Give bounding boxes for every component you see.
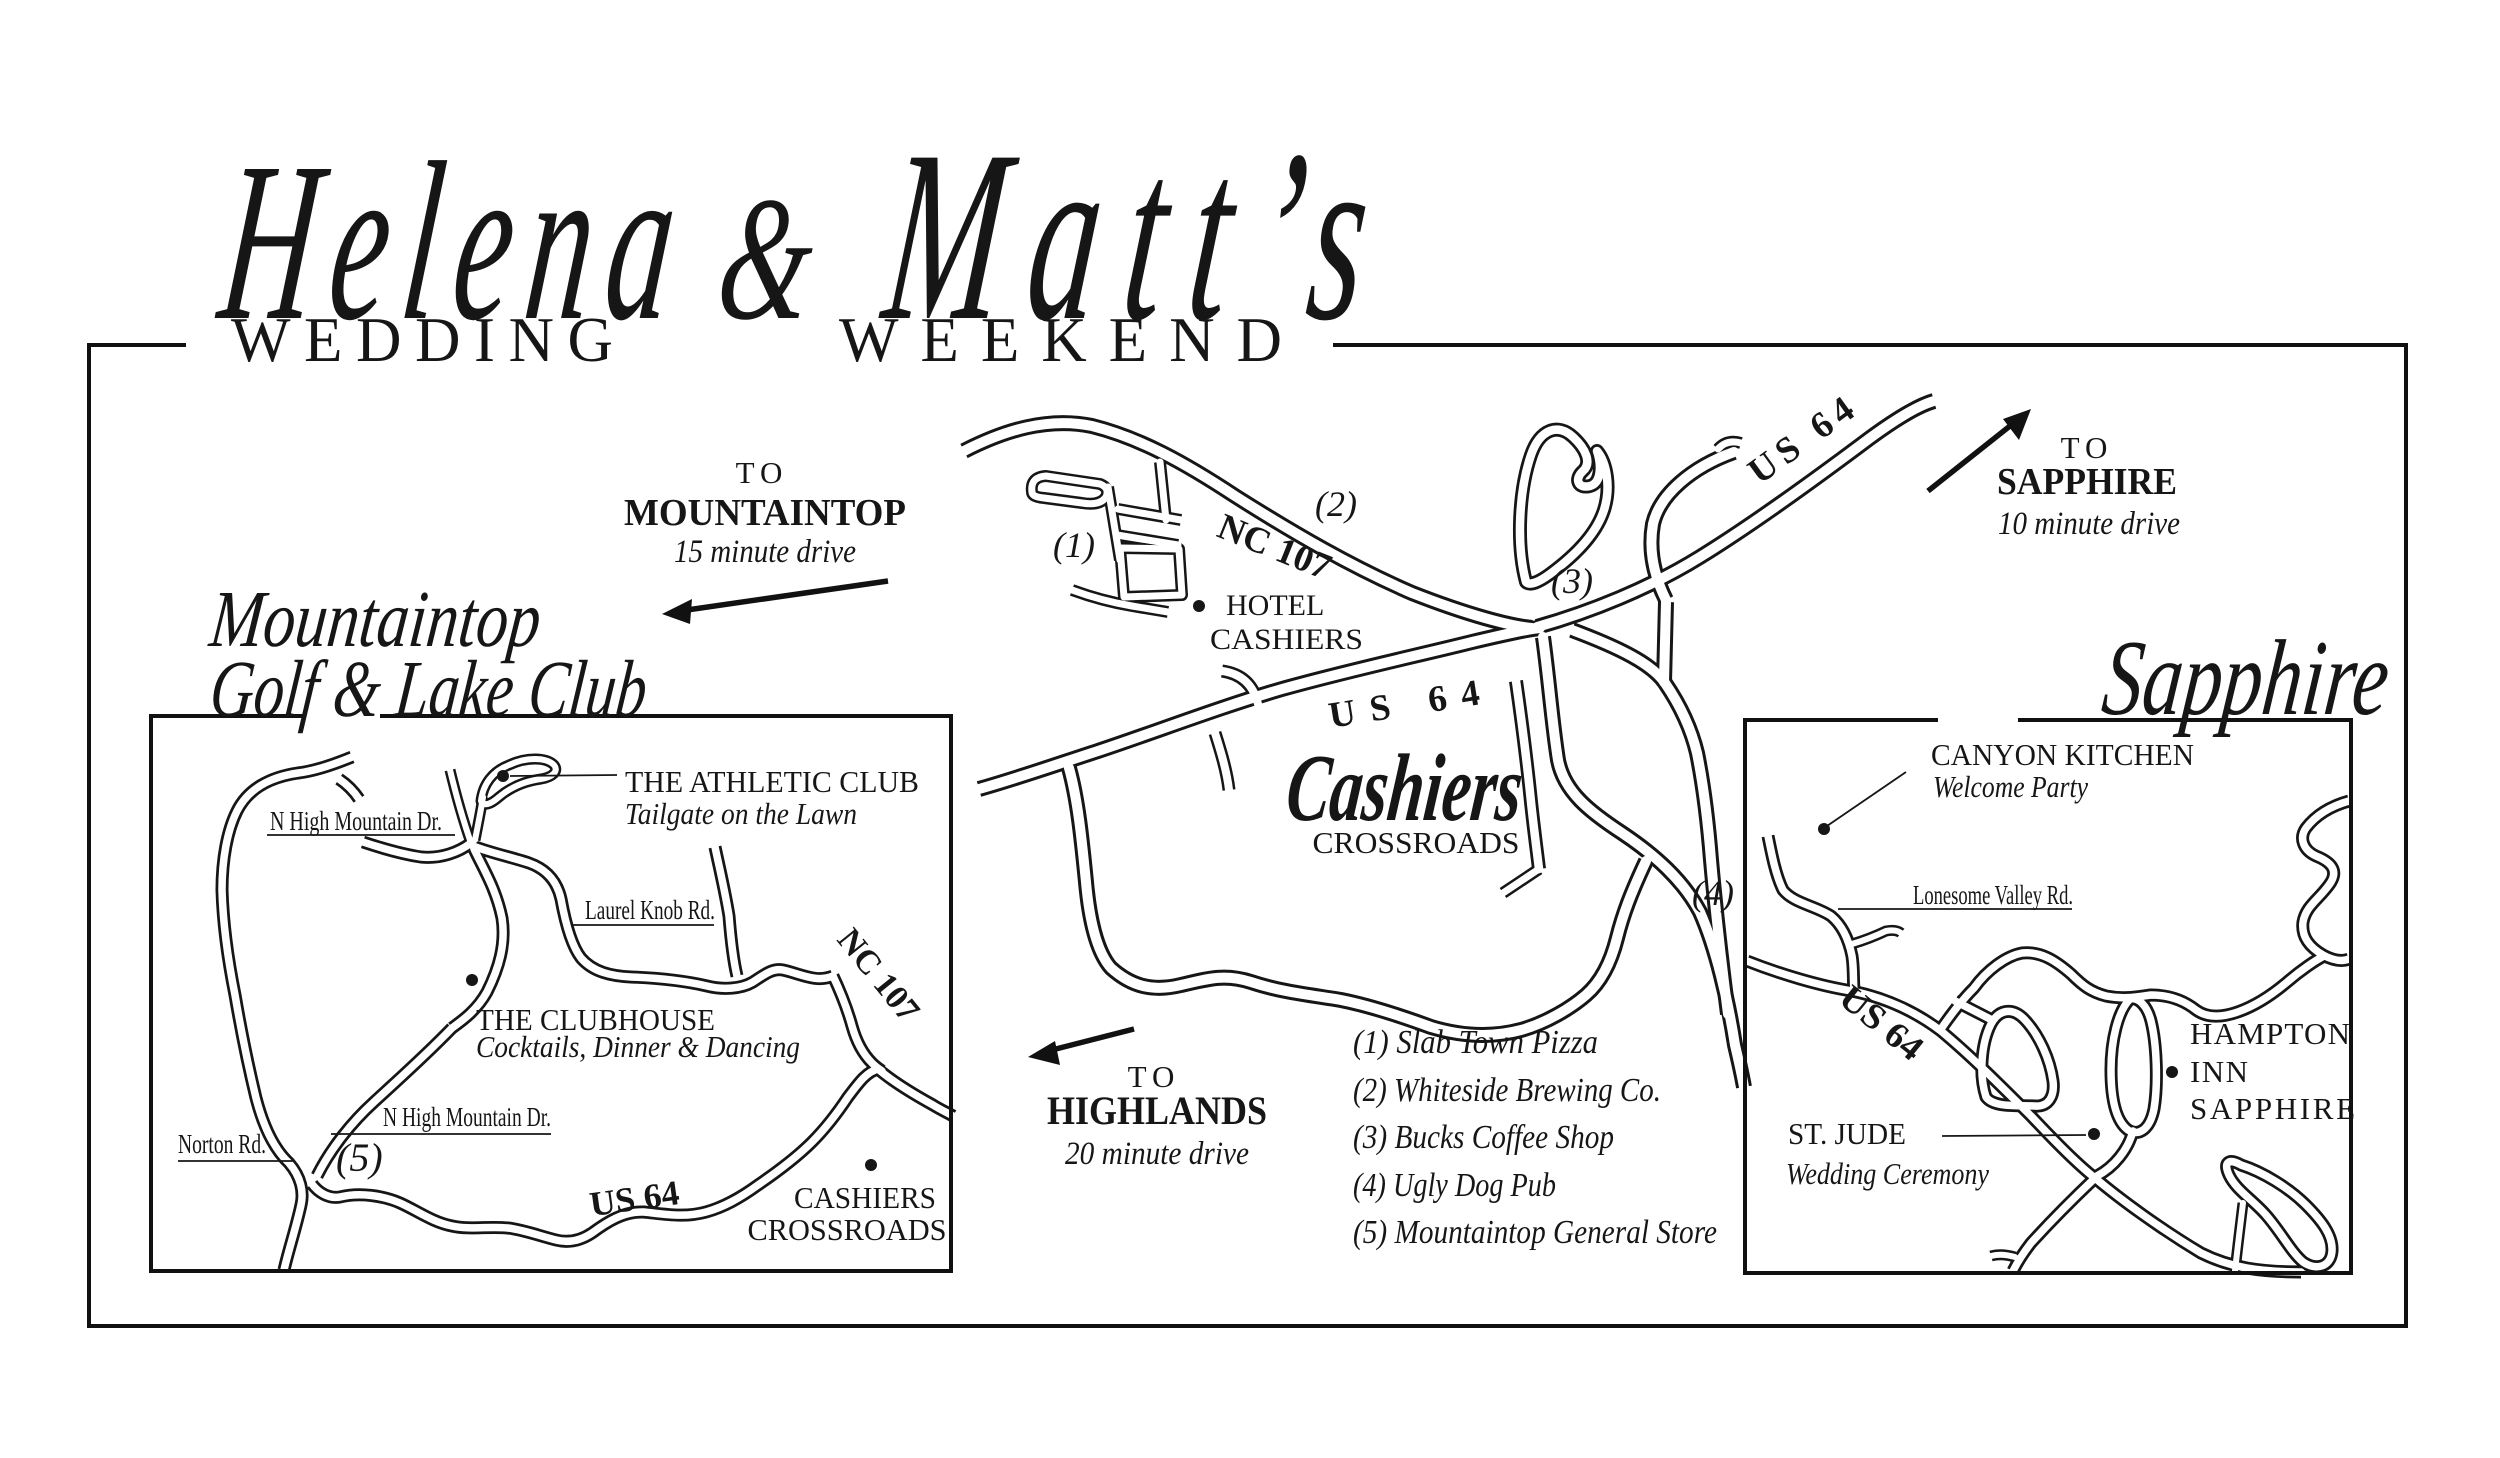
svg-text:(2) Whiteside Brewing Co.: (2) Whiteside Brewing Co.: [1353, 1072, 1661, 1109]
svg-text:HOTEL: HOTEL: [1226, 589, 1324, 622]
svg-text:N High Mountain Dr.: N High Mountain Dr.: [270, 806, 442, 836]
svg-text:THE ATHLETIC CLUB: THE ATHLETIC CLUB: [625, 764, 919, 799]
svg-text:(3): (3): [1551, 561, 1593, 601]
svg-text:10 minute drive: 10 minute drive: [1998, 506, 2180, 542]
svg-text:Lonesome Valley Rd.: Lonesome Valley Rd.: [1913, 880, 2073, 910]
svg-text:HIGHLANDS: HIGHLANDS: [1047, 1088, 1267, 1133]
svg-text:Sapphire: Sapphire: [2098, 618, 2396, 738]
svg-text:CASHIERS: CASHIERS: [1210, 623, 1363, 656]
svg-text:(5) Mountaintop General Store: (5) Mountaintop General Store: [1353, 1214, 1717, 1251]
svg-text:CASHIERS: CASHIERS: [794, 1180, 936, 1215]
svg-text:Welcome Party: Welcome Party: [1933, 769, 2088, 804]
svg-text:(3) Bucks Coffee Shop: (3) Bucks Coffee Shop: [1353, 1119, 1614, 1156]
svg-text:ST. JUDE: ST. JUDE: [1788, 1116, 1906, 1151]
svg-text:TO: TO: [2061, 430, 2114, 465]
svg-text:(4): (4): [1692, 873, 1734, 913]
svg-text:15 minute drive: 15 minute drive: [674, 534, 856, 570]
svg-text:(1) Slab Town Pizza: (1) Slab Town Pizza: [1353, 1024, 1598, 1061]
svg-text:(2): (2): [1315, 484, 1357, 524]
svg-text:Laurel Knob Rd.: Laurel Knob Rd.: [585, 895, 715, 925]
svg-text:(4) Ugly Dog Pub: (4) Ugly Dog Pub: [1353, 1167, 1556, 1204]
svg-text:INN: INN: [2190, 1054, 2248, 1089]
svg-text:CROSSROADS: CROSSROADS: [748, 1212, 947, 1247]
svg-text:Cocktails, Dinner & Dancing: Cocktails, Dinner & Dancing: [476, 1029, 800, 1064]
svg-text:TO: TO: [736, 455, 789, 490]
svg-text:Tailgate on the Lawn: Tailgate on the Lawn: [625, 796, 857, 831]
svg-text:CROSSROADS: CROSSROADS: [1313, 825, 1520, 860]
svg-text:CANYON KITCHEN: CANYON KITCHEN: [1931, 737, 2194, 772]
svg-text:MOUNTAINTOP: MOUNTAINTOP: [624, 492, 906, 534]
svg-text:(1): (1): [1053, 525, 1095, 565]
svg-text:Golf & Lake Club: Golf & Lake Club: [206, 645, 651, 734]
svg-text:N High Mountain Dr.: N High Mountain Dr.: [383, 1102, 551, 1132]
svg-text:Norton Rd.: Norton Rd.: [178, 1129, 266, 1159]
svg-text:SAPPHIRE: SAPPHIRE: [1997, 461, 2177, 503]
svg-text:Wedding Ceremony: Wedding Ceremony: [1786, 1156, 1989, 1191]
svg-text:(5): (5): [336, 1135, 383, 1180]
svg-text:20 minute drive: 20 minute drive: [1065, 1136, 1249, 1172]
svg-text:HAMPTON: HAMPTON: [2190, 1016, 2350, 1051]
